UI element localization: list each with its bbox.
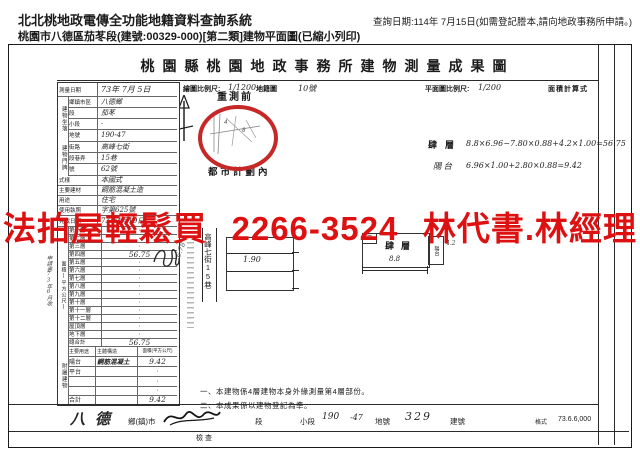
floor-plan-dimension: 8.8 [389, 255, 400, 263]
floor-area: · [102, 315, 177, 322]
form-bottom-line [9, 404, 598, 405]
floor-label: 第六層 [68, 266, 102, 274]
footer-print-code: 73.6.6,000 [558, 416, 591, 423]
calc-balcony-formula: 6.96×1.00+2.80×0.88=9.42 [466, 161, 582, 170]
annex-area: 9.42 [138, 357, 177, 366]
floor-label: 第七層 [68, 274, 102, 282]
floor-label: 屋頂層 [68, 322, 102, 330]
dim-tick [292, 288, 299, 289]
annex-structure [96, 376, 138, 386]
annex-use [68, 386, 96, 395]
dim-tick [362, 266, 363, 274]
floor-label: 第五層 [68, 258, 102, 266]
field-label: 段 [68, 107, 98, 118]
footer-subseg-value: 190 [322, 412, 339, 422]
map-sheet-number: 10號 [298, 83, 316, 94]
area-calc-header: 面積計算式 [548, 84, 588, 94]
footer-check-label: 檢查 [196, 433, 214, 443]
calc-floor-label: 肆層 [428, 138, 462, 151]
pre-survey-label: 重測前 [217, 88, 253, 103]
system-title: 北北桃地政電傳全功能地籍資料查詢系統 [18, 10, 252, 29]
red-circle-annotation [198, 105, 278, 171]
floor-area: · [102, 299, 177, 306]
watermark-text-1: 法拍屋輕鬆買 [3, 202, 207, 250]
watermark-text-2: 林代書.林經理 [423, 202, 637, 250]
survey-date-label: 測量日期 [58, 83, 98, 96]
field-value: 本國式 [98, 175, 122, 185]
field-label: 號 [68, 163, 98, 175]
field-value: 鋼筋混凝土造 [98, 185, 143, 195]
annex-area: · [138, 378, 177, 385]
survey-date-value: 73年 7月 5日 [98, 84, 150, 95]
field-label: 式樣 [58, 175, 98, 185]
dim-tick [292, 252, 299, 253]
survey-date-row: 測量日期 73年 7月 5日 [58, 83, 177, 97]
floor-label: 第八層 [68, 282, 102, 290]
annex-structure [96, 366, 138, 376]
field-label: 小段 [68, 118, 98, 129]
map-scale-label: 繪圖比例尺: [183, 84, 220, 94]
calc-balcony-label: 陽台 [433, 160, 454, 172]
field-value: 高峰七街 [98, 142, 129, 152]
application-stamp-note: 申請書73年6月收 [45, 255, 51, 306]
field-label: 段巷弄 [68, 152, 98, 163]
dimension-line [362, 270, 428, 271]
field-label: 主要建材 [58, 185, 98, 195]
annex-structure: 鋼筋混凝土 [96, 356, 138, 366]
field-label: 地號 [68, 129, 98, 141]
floor-label: 地下層 [68, 330, 102, 338]
annex-use: 合計 [68, 395, 96, 404]
field-value: 茄苳 [98, 108, 115, 118]
signature-scribble [160, 406, 222, 428]
annex-area: · [138, 368, 177, 375]
field-label: 街路 [68, 141, 98, 152]
floor-area: · [102, 307, 177, 314]
footer-town-label: 鄉(鎮)市 [128, 416, 156, 427]
query-date: 查詢日期:114年 7月15日(如需登記謄本,請向地政事務所申請。) [373, 14, 632, 28]
floor-label: 第十層 [68, 298, 102, 306]
footer-form-label: 格式 [535, 417, 547, 426]
floor-area: · [102, 283, 177, 290]
watermark-phone: 2266-3524 [232, 210, 399, 248]
footer-lot-value: -47 [350, 413, 363, 422]
annex-area-total: 9.42 [138, 395, 177, 404]
annex-col3-header: 面積(平方公尺) [138, 348, 177, 354]
footer-bottom-line [9, 431, 629, 432]
plan-scale-value: 1/200 [478, 83, 501, 92]
calc-floor-formula: 8.8×6.96−7.80×0.88+4.2×1.00=56.75 [466, 139, 626, 148]
left-plan-dimension: 1.90 [243, 255, 261, 264]
annex-use [68, 376, 96, 386]
title-divider [57, 80, 598, 81]
annex-total-row: 合計 9.42 [68, 395, 177, 404]
floor-area: · [102, 275, 177, 282]
field-value: · [98, 120, 103, 128]
field-label: 鄉鎮市區 [68, 96, 98, 107]
field-value: 62號 [98, 164, 117, 174]
dim-tick [292, 270, 299, 271]
floor-label: 第四層 [68, 250, 102, 258]
document-title: 桃園縣桃園地政事務所建物測量成果圖 [57, 56, 598, 76]
field-value: 15巷 [98, 153, 117, 163]
annex-structure [96, 395, 138, 404]
annex-structure [96, 386, 138, 395]
annex-col1-header: 主要用途 [68, 346, 96, 356]
floor-label: 第十一層 [68, 306, 102, 314]
floor-area: · [102, 323, 177, 330]
red-watermark: 法拍屋輕鬆買 2266-3524 林代書.林經理 [0, 202, 640, 250]
footer-seg-label: 段 [255, 416, 263, 427]
plan-scale-label: 平面圖比例尺: [425, 84, 469, 94]
note-1: 一、本建物係4層建物本身外緣測量第4層部份。 [200, 386, 369, 397]
dim-tick [427, 266, 428, 274]
annex-use: 平台 [68, 366, 96, 376]
floor-label: 總合計 [68, 338, 102, 346]
footer-lot-label: 地號 [375, 416, 390, 427]
field-value: 八德鄉 [98, 97, 122, 107]
field-value: 190-47 [98, 131, 126, 139]
floor-area: · [102, 291, 177, 298]
annex-use: 陽台 [68, 356, 96, 366]
annex-col2-header: 主體構造 [96, 346, 138, 356]
floor-label: 第九層 [68, 290, 102, 298]
footer-bldg-value: 329 [405, 410, 432, 423]
annex-area: · [138, 387, 177, 394]
footer-subseg-label: 小段 [300, 416, 315, 427]
map-scale-suffix: 地籍圖 [256, 84, 277, 94]
footer-bldg-label: 建號 [450, 416, 465, 427]
floor-label: 第十二層 [68, 314, 102, 322]
footer-town-value: 八德 [70, 408, 120, 429]
document-subtitle: 桃園市八德區茄苳段(建號:00329-000)[第二類]建物平面圖(已縮小列印) [18, 28, 360, 44]
floor-area: · [102, 331, 177, 338]
